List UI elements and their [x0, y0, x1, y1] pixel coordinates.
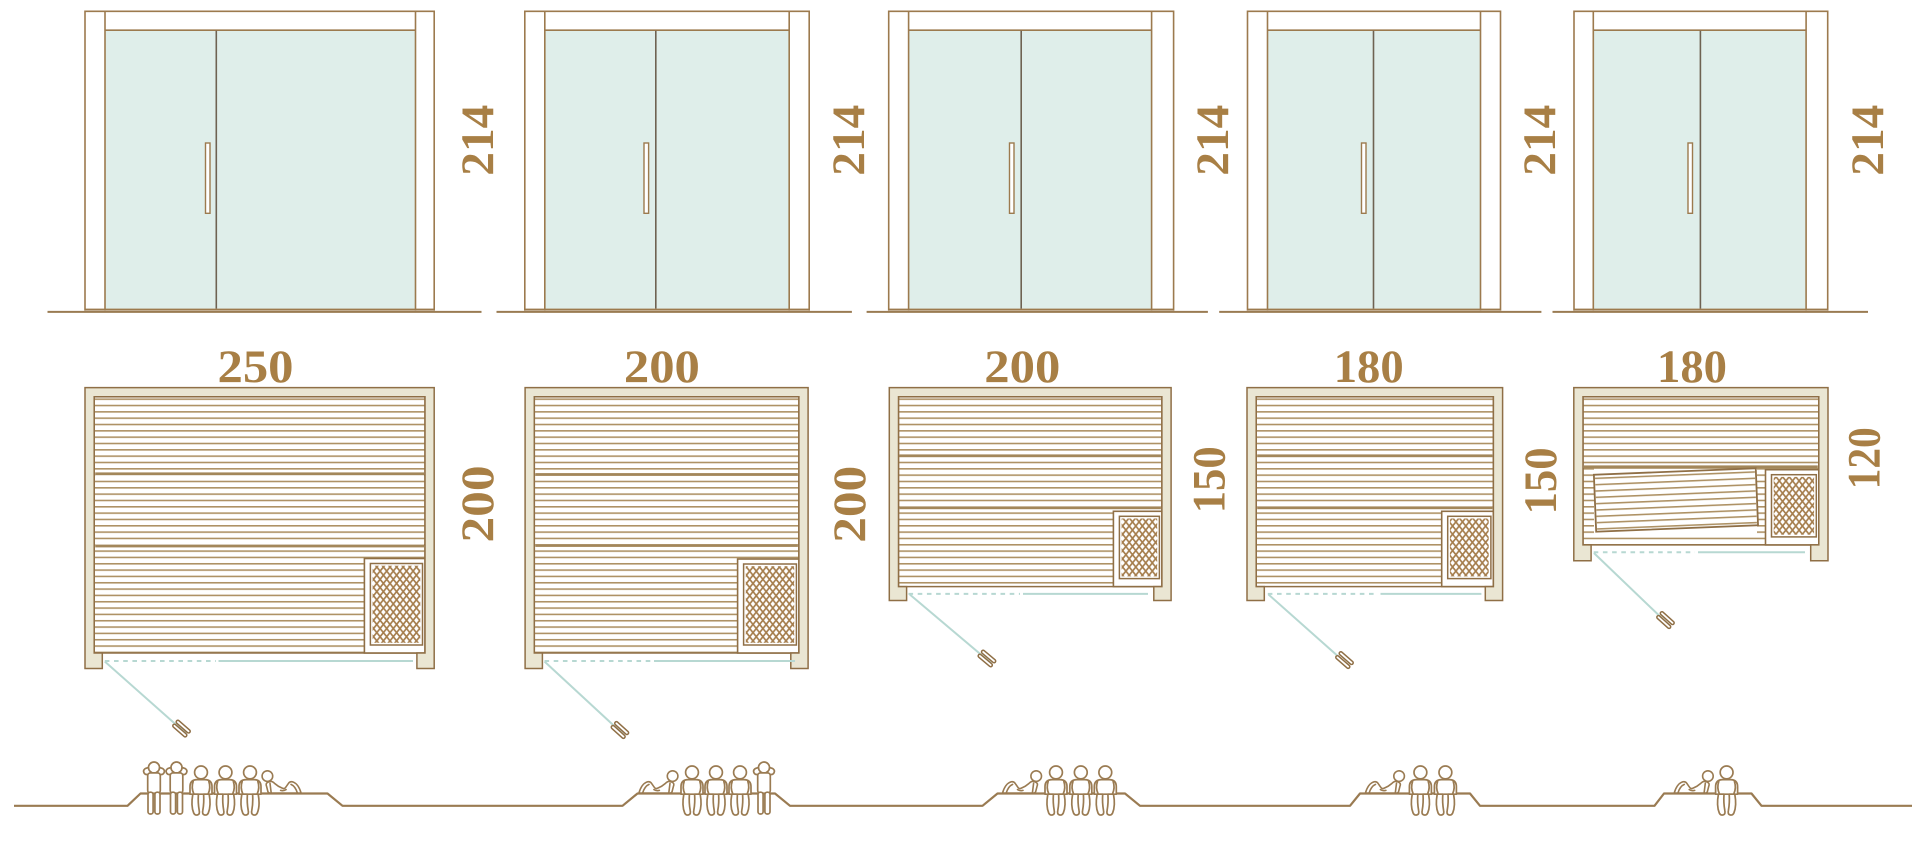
svg-text:214: 214: [823, 105, 875, 176]
svg-text:150: 150: [1183, 446, 1235, 513]
svg-text:120: 120: [1839, 427, 1891, 489]
svg-text:180: 180: [1334, 341, 1404, 393]
svg-text:180: 180: [1657, 341, 1727, 393]
svg-text:150: 150: [1515, 447, 1567, 514]
svg-text:200: 200: [824, 466, 876, 543]
svg-text:200: 200: [452, 466, 504, 543]
svg-text:200: 200: [984, 341, 1060, 393]
svg-text:250: 250: [218, 341, 294, 393]
svg-text:214: 214: [1842, 105, 1894, 176]
svg-text:214: 214: [1187, 105, 1239, 176]
svg-text:200: 200: [624, 341, 700, 393]
svg-text:214: 214: [452, 105, 504, 176]
svg-text:214: 214: [1514, 105, 1566, 176]
